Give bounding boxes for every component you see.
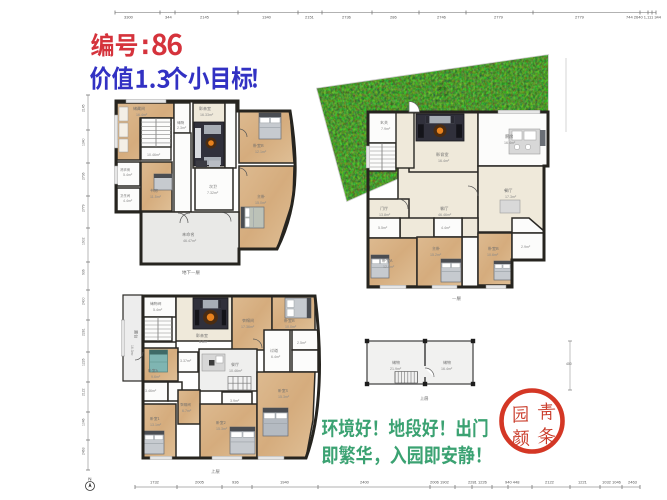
- svg-text:2736: 2736: [342, 15, 352, 20]
- svg-text:5.4m²: 5.4m²: [123, 173, 133, 177]
- svg-text:16.4m²: 16.4m²: [441, 367, 453, 371]
- svg-text:1032 1046: 1032 1046: [602, 480, 622, 485]
- svg-text:4.4m²: 4.4m²: [441, 226, 451, 230]
- svg-text:10.6m²: 10.6m²: [487, 253, 499, 257]
- svg-text:17.36m²: 17.36m²: [241, 325, 255, 329]
- svg-text:2.5m²: 2.5m²: [297, 341, 307, 345]
- svg-text:2779: 2779: [575, 15, 585, 20]
- svg-text:3.46m²: 3.46m²: [145, 389, 157, 393]
- svg-text:2145: 2145: [200, 15, 210, 20]
- svg-text:12.8m²: 12.8m²: [383, 265, 395, 269]
- svg-text:21.9m²: 21.9m²: [390, 367, 402, 371]
- svg-text:2.3m²: 2.3m²: [177, 126, 187, 130]
- svg-text:2463: 2463: [82, 447, 86, 455]
- svg-text:400: 400: [566, 362, 572, 366]
- svg-text:16.4m²: 16.4m²: [438, 159, 450, 163]
- svg-text:11.5m²: 11.5m²: [150, 195, 162, 199]
- svg-text:1940: 1940: [280, 480, 290, 485]
- svg-text:17.3m²: 17.3m²: [505, 195, 517, 199]
- svg-text:2122: 2122: [545, 480, 555, 485]
- svg-text:1221: 1221: [578, 480, 588, 485]
- svg-text:7.32m²: 7.32m²: [207, 191, 219, 195]
- svg-text:936: 936: [82, 269, 86, 275]
- svg-text:1340: 1340: [82, 138, 86, 146]
- svg-text:5.5m²: 5.5m²: [378, 226, 388, 230]
- svg-text:940 448: 940 448: [505, 480, 520, 485]
- svg-text:1902: 1902: [82, 237, 86, 245]
- svg-text:2281: 2281: [82, 328, 86, 336]
- svg-text:2.9m²: 2.9m²: [521, 245, 531, 249]
- svg-text:1226: 1226: [82, 358, 86, 366]
- svg-text:N: N: [88, 477, 91, 482]
- svg-text:370.9m²: 370.9m²: [437, 93, 450, 97]
- svg-text:15.3m²: 15.3m²: [278, 395, 290, 399]
- svg-text:6.8m²: 6.8m²: [199, 340, 209, 344]
- svg-text:2736: 2736: [82, 172, 86, 180]
- svg-text:2779: 2779: [494, 15, 504, 20]
- svg-text:3300: 3300: [124, 15, 134, 20]
- svg-text:4.4m²: 4.4m²: [123, 199, 133, 203]
- svg-text:2122: 2122: [82, 388, 86, 396]
- svg-text:344: 344: [165, 15, 172, 20]
- svg-text:10.46m²: 10.46m²: [229, 369, 243, 373]
- svg-text:2400: 2400: [82, 297, 86, 305]
- svg-text:16.33m²: 16.33m²: [200, 113, 214, 117]
- svg-text:16.4m²: 16.4m²: [504, 141, 516, 145]
- svg-text:1340: 1340: [262, 15, 272, 20]
- svg-text:13.1m²: 13.1m²: [150, 423, 162, 427]
- svg-text:15.3m²: 15.3m²: [216, 427, 228, 431]
- svg-text:5.4m²: 5.4m²: [153, 308, 163, 312]
- svg-text:1732: 1732: [150, 480, 160, 485]
- svg-text:16.3m²: 16.3m²: [130, 345, 134, 356]
- svg-text:936: 936: [232, 480, 239, 485]
- svg-text:15.2m²: 15.2m²: [430, 253, 442, 257]
- svg-text:2151: 2151: [305, 15, 315, 20]
- svg-text:2400: 2400: [360, 480, 370, 485]
- svg-text:3.9m²: 3.9m²: [230, 399, 240, 403]
- svg-text:9.6m²: 9.6m²: [151, 375, 161, 379]
- svg-text:2145: 2145: [82, 104, 86, 112]
- svg-text:46.47m²: 46.47m²: [183, 239, 197, 243]
- svg-text:12.1m²: 12.1m²: [255, 150, 267, 154]
- svg-text:1046: 1046: [82, 418, 86, 426]
- svg-text:6.4m²: 6.4m²: [271, 355, 281, 359]
- svg-text:16.4m²: 16.4m²: [136, 113, 148, 117]
- svg-text:286: 286: [390, 15, 397, 20]
- svg-text:2281 1226: 2281 1226: [468, 480, 488, 485]
- svg-text:2006 1902: 2006 1902: [430, 480, 450, 485]
- svg-text:2779: 2779: [82, 204, 86, 212]
- svg-text:2746: 2746: [437, 15, 447, 20]
- svg-text:13.8m²: 13.8m²: [379, 213, 391, 217]
- svg-text:7.9m²: 7.9m²: [381, 127, 391, 131]
- svg-text:46.46m²: 46.46m²: [438, 213, 452, 217]
- svg-text:3.37m²: 3.37m²: [180, 359, 192, 363]
- svg-text:6.7m²: 6.7m²: [182, 409, 192, 413]
- svg-text:2005: 2005: [195, 480, 205, 485]
- svg-text:744 2640 1,111 344: 744 2640 1,111 344: [626, 15, 662, 20]
- svg-text:10.46m²: 10.46m²: [147, 153, 161, 157]
- svg-text:10.0m²: 10.0m²: [285, 325, 297, 329]
- svg-text:15.0m²: 15.0m²: [255, 201, 267, 205]
- svg-text:2463: 2463: [628, 480, 638, 485]
